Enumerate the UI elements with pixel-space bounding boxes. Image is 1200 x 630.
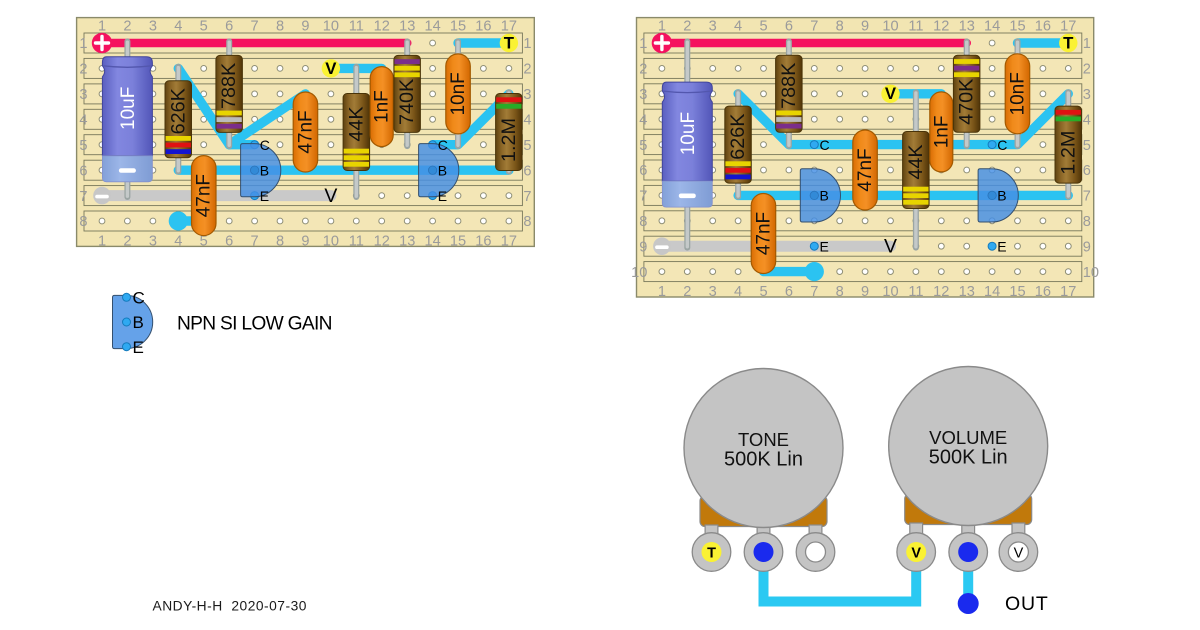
svg-text:11: 11 [349,18,364,34]
svg-text:B: B [260,162,269,178]
svg-text:8: 8 [276,18,284,34]
svg-text:15: 15 [450,234,466,250]
svg-text:14: 14 [424,18,440,34]
svg-text:17: 17 [501,18,517,34]
svg-text:V: V [1014,545,1024,561]
svg-text:3: 3 [149,234,157,250]
svg-text:TONE: TONE [738,429,789,450]
svg-text:1: 1 [639,36,647,52]
svg-text:16: 16 [1035,18,1051,34]
svg-text:6: 6 [785,284,793,300]
svg-text:5: 5 [759,18,767,34]
svg-text:9: 9 [639,239,647,255]
svg-text:44K: 44K [345,106,367,141]
svg-text:E: E [438,188,447,204]
svg-text:16: 16 [475,18,491,34]
svg-text:5: 5 [79,138,87,154]
svg-text:1nF: 1nF [372,90,393,123]
svg-text:16: 16 [1035,284,1051,300]
svg-text:1: 1 [523,36,531,52]
svg-text:10uF: 10uF [678,112,699,155]
svg-text:8: 8 [836,284,844,300]
svg-text:2: 2 [683,18,691,34]
svg-text:15: 15 [1009,284,1025,300]
svg-text:3: 3 [523,87,531,103]
svg-text:17: 17 [1060,284,1076,300]
svg-text:8: 8 [276,234,284,250]
svg-text:10uF: 10uF [118,87,139,130]
svg-text:626K: 626K [727,113,749,159]
svg-text:12: 12 [933,18,949,34]
svg-text:47nF: 47nF [855,148,876,191]
svg-text:5: 5 [639,138,647,154]
svg-text:10nF: 10nF [1008,72,1029,115]
svg-text:C: C [260,137,270,153]
svg-text:OUT: OUT [1005,593,1049,615]
svg-text:12: 12 [933,284,949,300]
svg-text:6: 6 [225,234,233,250]
svg-text:6: 6 [1083,163,1091,179]
svg-text:2: 2 [123,18,131,34]
svg-text:C: C [133,289,145,308]
svg-text:6: 6 [785,18,793,34]
svg-text:14: 14 [984,284,1000,300]
svg-text:4: 4 [79,113,87,129]
svg-text:1: 1 [79,36,87,52]
svg-text:11: 11 [349,234,364,250]
svg-text:T: T [707,545,716,561]
svg-text:8: 8 [523,214,531,230]
svg-text:15: 15 [450,18,466,34]
svg-text:5: 5 [1083,138,1091,154]
svg-text:3: 3 [709,18,717,34]
svg-text:10nF: 10nF [448,72,469,115]
svg-text:3: 3 [79,87,87,103]
svg-text:16: 16 [475,234,491,250]
svg-text:1: 1 [658,284,666,300]
svg-text:1: 1 [98,234,106,250]
svg-text:626K: 626K [167,88,189,134]
svg-text:7: 7 [79,189,87,205]
svg-text:10: 10 [323,18,339,34]
svg-text:1.2M: 1.2M [1057,131,1079,175]
svg-text:15: 15 [1009,18,1025,34]
svg-text:470K: 470K [956,79,978,125]
svg-text:5: 5 [523,138,531,154]
svg-text:2: 2 [639,62,647,78]
svg-text:V: V [325,59,337,78]
svg-text:11: 11 [908,284,923,300]
svg-text:2: 2 [123,234,131,250]
svg-text:9: 9 [861,284,869,300]
svg-text:B: B [820,188,829,204]
svg-text:10: 10 [882,18,898,34]
svg-text:4: 4 [734,18,742,34]
svg-text:9: 9 [301,234,309,250]
svg-text:6: 6 [79,163,87,179]
svg-text:7: 7 [1083,189,1091,205]
svg-text:7: 7 [639,189,647,205]
svg-text:788K: 788K [218,63,240,109]
svg-text:7: 7 [251,234,259,250]
svg-text:E: E [133,338,144,357]
svg-text:6: 6 [225,18,233,34]
svg-text:2: 2 [683,284,691,300]
svg-text:8: 8 [79,214,87,230]
svg-text:V: V [884,236,897,258]
svg-text:500K Lin: 500K Lin [724,449,803,471]
svg-text:4: 4 [639,112,647,128]
svg-text:8: 8 [836,18,844,34]
svg-text:1: 1 [658,18,666,34]
svg-text:4: 4 [734,284,742,300]
svg-text:1: 1 [1083,36,1091,52]
svg-text:V: V [911,545,921,561]
svg-text:3: 3 [709,284,717,300]
svg-text:9: 9 [1083,239,1091,255]
svg-text:17: 17 [501,234,517,250]
svg-text:B: B [438,162,447,178]
svg-text:3: 3 [1083,87,1091,103]
svg-text:11: 11 [908,18,923,34]
svg-text:2: 2 [79,62,87,78]
svg-text:2: 2 [523,62,531,78]
svg-text:7: 7 [523,189,531,205]
svg-text:V: V [885,84,897,103]
svg-text:7: 7 [810,18,818,34]
svg-text:9: 9 [861,18,869,34]
svg-text:2: 2 [1083,62,1091,78]
svg-text:4: 4 [174,18,182,34]
svg-text:8: 8 [639,214,647,230]
svg-text:E: E [260,188,269,204]
svg-text:14: 14 [984,18,1000,34]
svg-text:3: 3 [149,18,157,34]
svg-text:7: 7 [810,284,818,300]
svg-text:C: C [997,137,1007,153]
svg-text:6: 6 [639,163,647,179]
svg-text:13: 13 [399,18,415,34]
svg-text:1nF: 1nF [931,116,952,149]
svg-text:3: 3 [639,87,647,103]
svg-text:500K Lin: 500K Lin [929,447,1008,469]
svg-text:B: B [133,313,144,332]
svg-text:5: 5 [759,284,767,300]
svg-text:ANDY-H-H 2020-07-30: ANDY-H-H 2020-07-30 [153,599,307,614]
svg-text:6: 6 [523,163,531,179]
svg-text:T: T [504,33,515,52]
svg-text:12: 12 [374,18,390,34]
svg-text:17: 17 [1060,18,1076,34]
svg-text:13: 13 [959,18,975,34]
svg-text:47nF: 47nF [295,110,316,153]
svg-text:C: C [820,137,830,153]
svg-text:NPN SI LOW GAIN: NPN SI LOW GAIN [177,314,332,335]
svg-text:7: 7 [251,18,259,34]
svg-text:9: 9 [301,18,309,34]
svg-text:13: 13 [399,234,415,250]
svg-text:44K: 44K [905,144,927,179]
svg-text:740K: 740K [396,79,418,125]
svg-text:47nF: 47nF [194,174,215,217]
svg-text:788K: 788K [778,63,800,109]
svg-text:10: 10 [631,265,647,281]
svg-text:10: 10 [323,234,339,250]
svg-text:1.2M: 1.2M [498,118,520,162]
svg-text:4: 4 [174,234,182,250]
svg-text:VOLUME: VOLUME [929,427,1007,448]
svg-text:10: 10 [1083,265,1099,281]
svg-text:B: B [997,188,1006,204]
svg-text:4: 4 [523,113,531,129]
svg-text:14: 14 [424,234,440,250]
svg-text:V: V [324,185,337,207]
svg-text:13: 13 [959,284,975,300]
svg-text:1: 1 [98,18,106,34]
svg-text:8: 8 [1083,214,1091,230]
svg-text:47nF: 47nF [754,212,775,255]
svg-text:12: 12 [374,234,390,250]
svg-text:C: C [438,137,448,153]
svg-text:4: 4 [1083,112,1091,128]
svg-text:5: 5 [200,18,208,34]
svg-text:E: E [997,238,1006,254]
svg-text:T: T [1063,33,1074,52]
svg-text:E: E [820,238,829,254]
svg-text:10: 10 [882,284,898,300]
